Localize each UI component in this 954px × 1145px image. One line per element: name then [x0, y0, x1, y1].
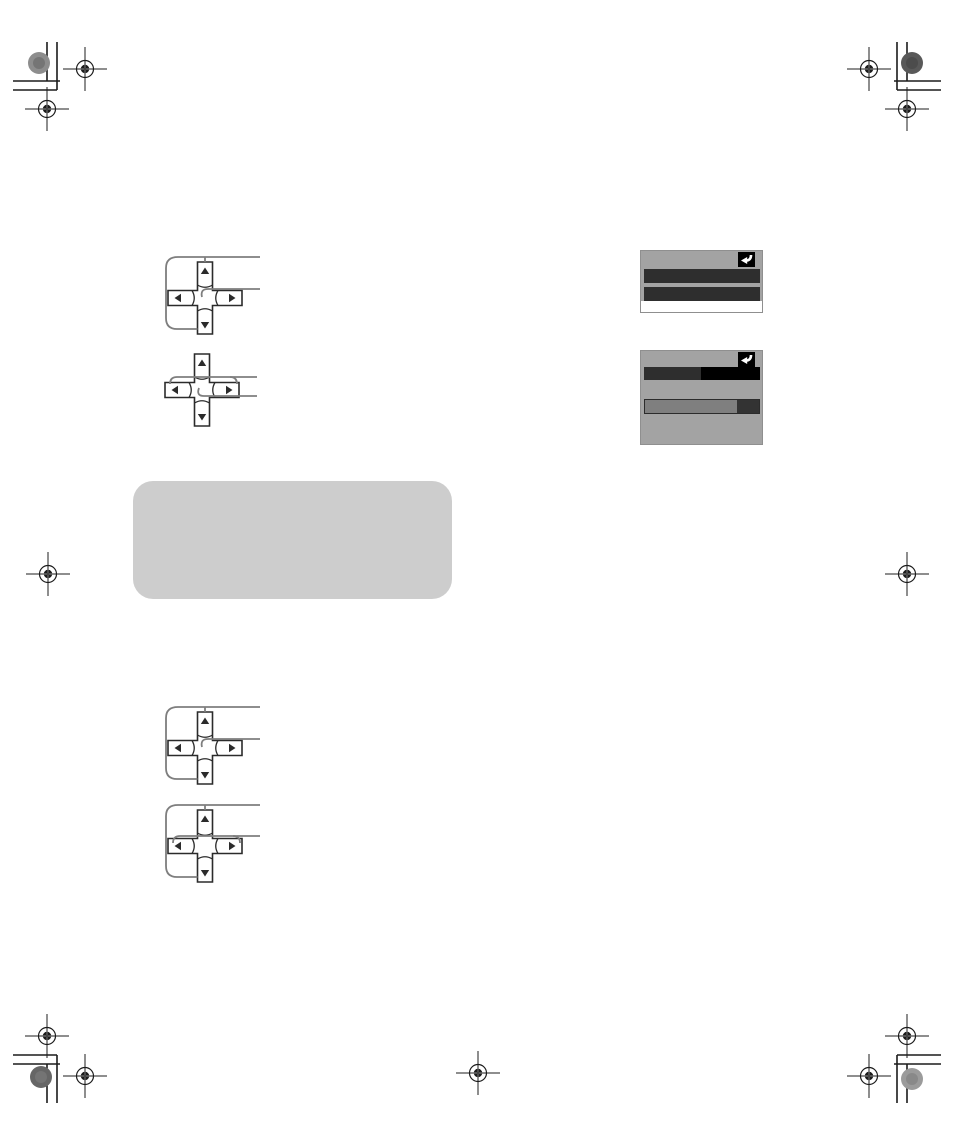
adjust-bar-split — [644, 367, 760, 380]
registration-target-bottom-icon — [456, 1051, 500, 1095]
adjust-bar-black-segment — [701, 367, 760, 380]
adjust-bar-dark-segment — [644, 367, 701, 380]
dpad-cross-icon — [165, 354, 239, 426]
dpad-cross-icon — [168, 712, 242, 784]
return-arrow-icon — [738, 352, 755, 367]
menu-bar-highlight — [641, 301, 762, 312]
osd-menu-screen — [640, 250, 763, 313]
slider-knob — [737, 400, 759, 413]
registration-mark-bottom-right — [847, 1014, 941, 1103]
dpad-cross-icon — [168, 262, 242, 334]
dpad-diagram-top-leftright — [165, 354, 257, 426]
registration-target-left-icon — [26, 552, 70, 596]
note-box — [133, 481, 452, 599]
menu-bar-dark — [644, 269, 760, 283]
dpad-diagram-bottom-all-directions — [166, 805, 260, 882]
osd-adjust-screen — [640, 350, 763, 445]
return-arrow-icon — [738, 252, 755, 267]
dpad-diagram-top-updown — [166, 257, 260, 334]
registration-target-right-icon — [885, 552, 929, 596]
menu-bar-dark — [644, 287, 760, 301]
dpad-diagram-bottom-updown — [166, 707, 260, 784]
registration-mark-top-right — [847, 42, 941, 131]
manual-page — [0, 0, 954, 1145]
dpad-cross-icon — [168, 810, 242, 882]
adjust-slider-bar — [644, 399, 760, 414]
registration-mark-top-left — [13, 42, 107, 131]
registration-mark-bottom-left — [13, 1014, 107, 1103]
